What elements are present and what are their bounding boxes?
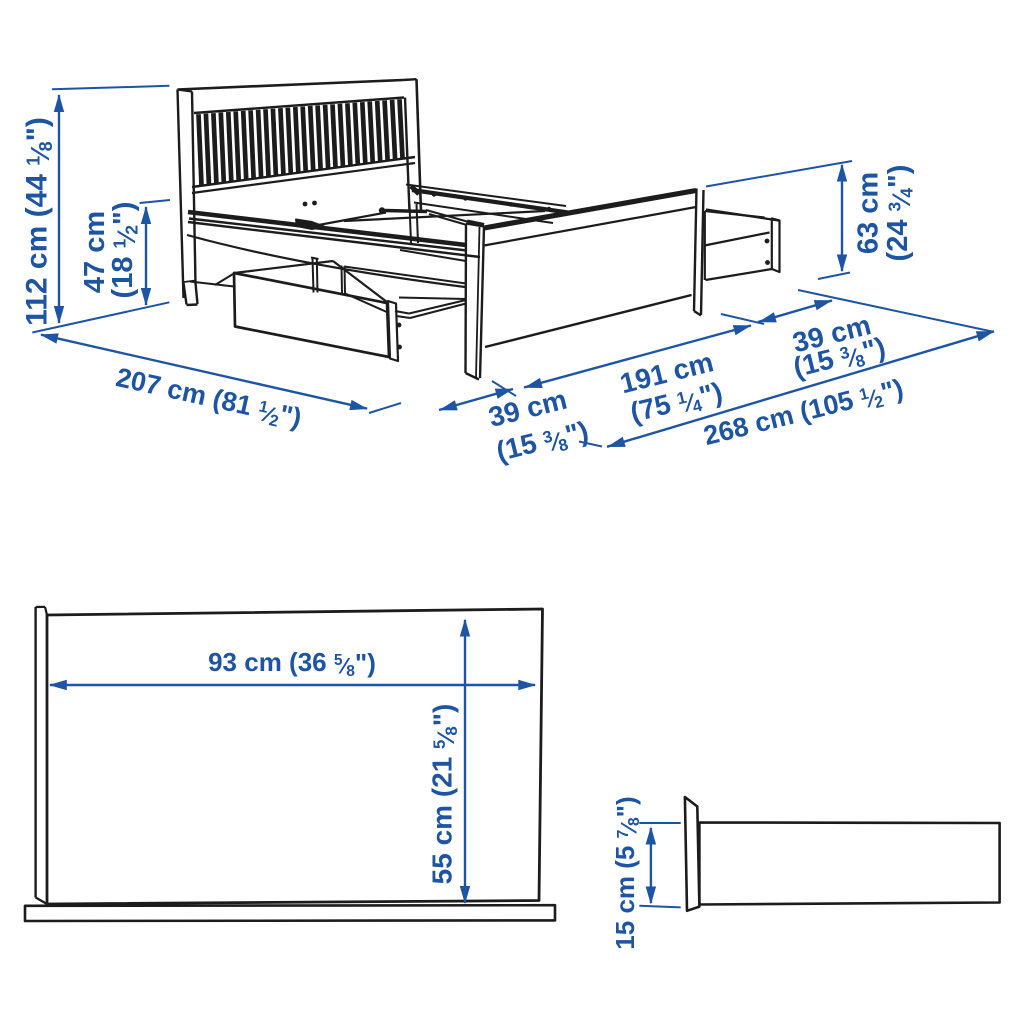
svg-text:55 cm (21 5⁄8​"): 55 cm (21 5⁄8​") [427,704,461,885]
svg-text:15 cm (5 7⁄8​"): 15 cm (5 7⁄8​") [610,796,643,949]
svg-text:93 cm (36 5⁄8​"): 93 cm (36 5⁄8​") [208,647,376,680]
svg-text:63 cm: 63 cm [853,172,885,254]
svg-text:268 cm (105 1⁄2​"): 268 cm (105 1⁄2​") [701,373,907,455]
svg-text:(18 1⁄2​"): (18 1⁄2​") [107,202,142,299]
svg-text:112 cm (44 1⁄8​"): 112 cm (44 1⁄8​") [20,117,56,326]
svg-text:(24 3⁄4​"): (24 3⁄4​") [882,165,917,262]
